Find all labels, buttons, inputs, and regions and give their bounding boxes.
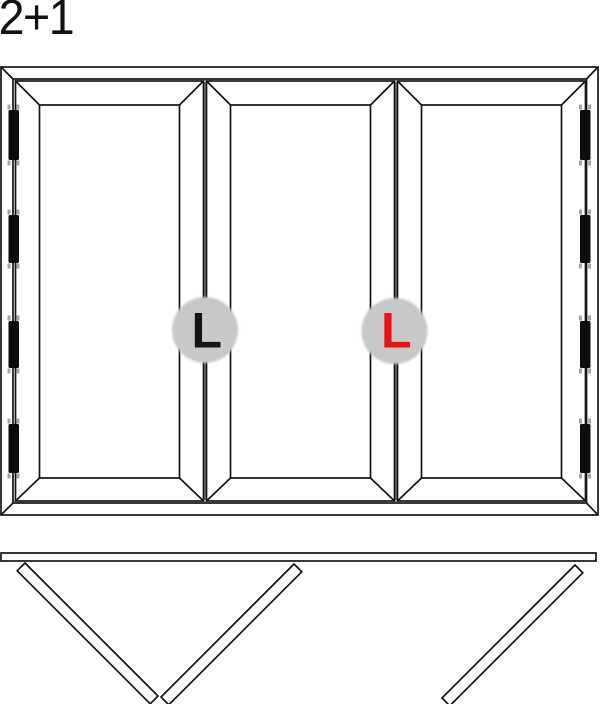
svg-text:L: L (192, 302, 223, 358)
svg-text:L: L (381, 302, 412, 358)
svg-text:2+1: 2+1 (0, 0, 73, 45)
